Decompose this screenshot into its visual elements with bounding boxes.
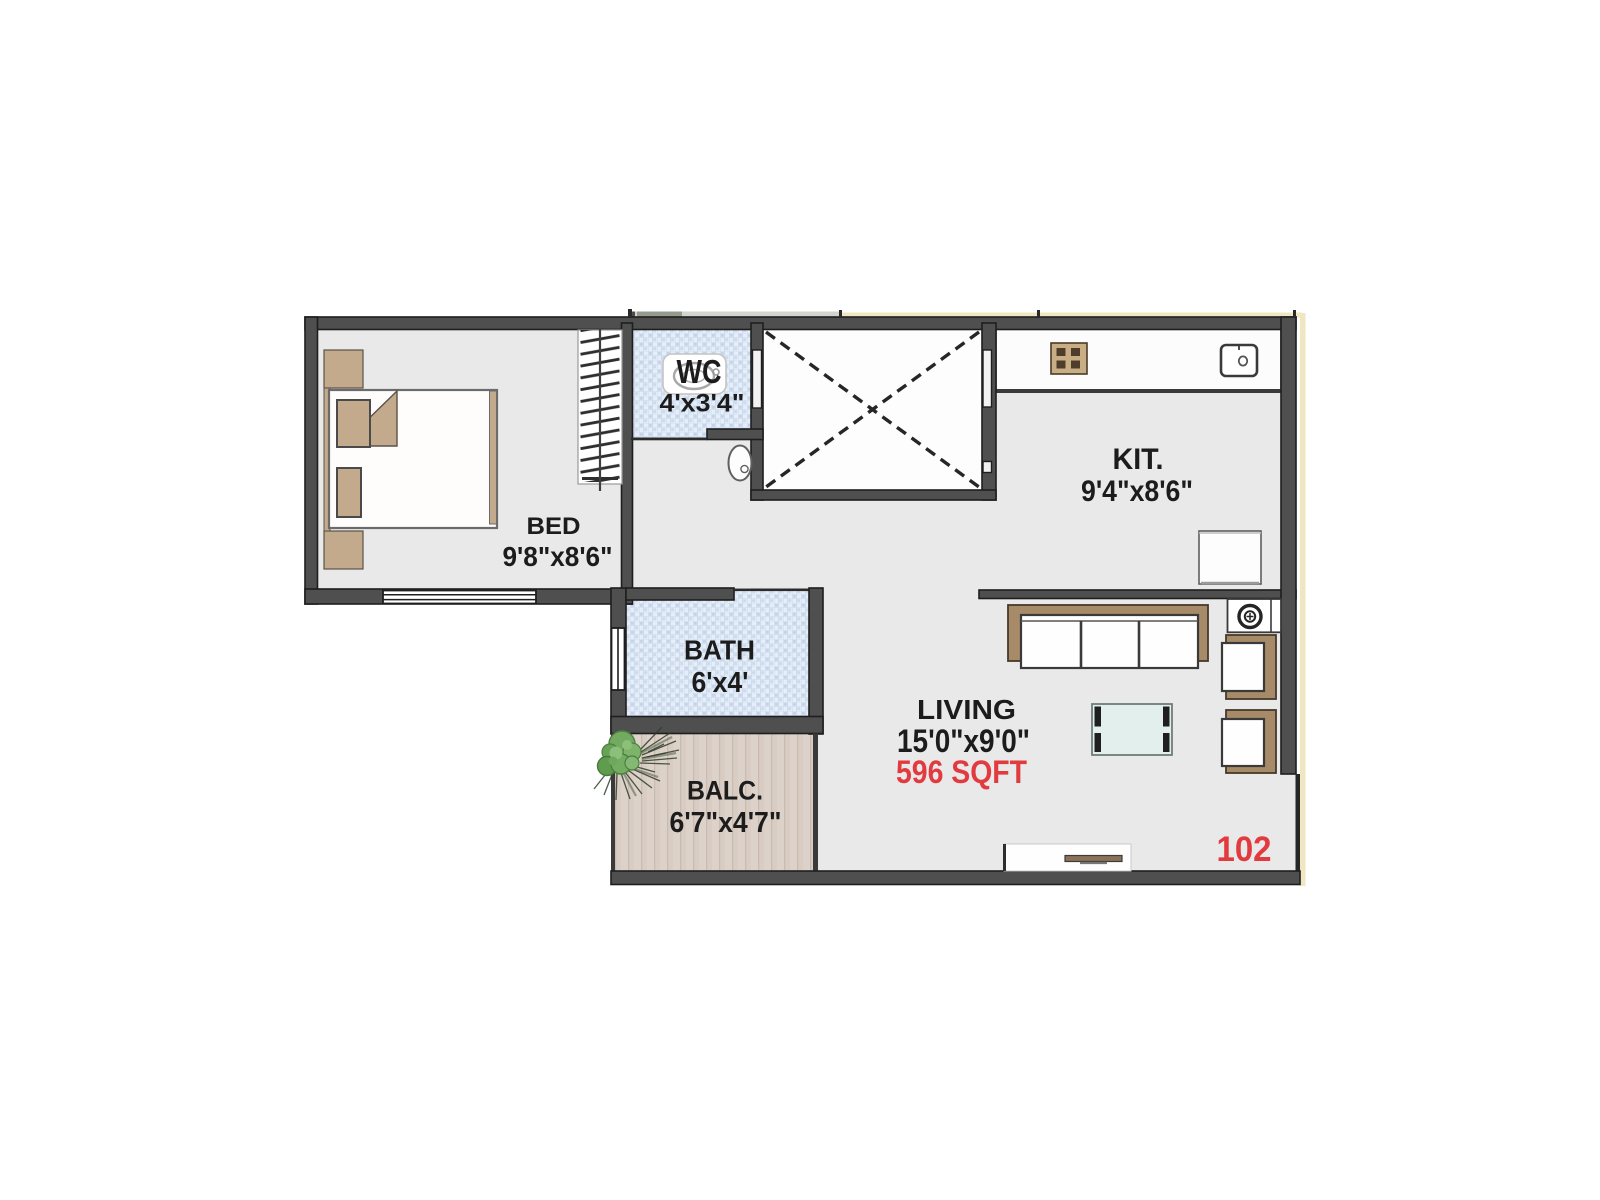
svg-text:4'x3'4": 4'x3'4" xyxy=(660,390,745,418)
svg-text:WC: WC xyxy=(677,353,722,390)
svg-text:LIVING: LIVING xyxy=(917,694,1016,725)
svg-text:BALC.: BALC. xyxy=(687,776,763,806)
svg-text:BATH: BATH xyxy=(684,635,755,666)
svg-text:9'4"x8'6": 9'4"x8'6" xyxy=(1081,475,1193,508)
svg-text:6'7"x4'7": 6'7"x4'7" xyxy=(670,807,782,839)
svg-text:596 SQFT: 596 SQFT xyxy=(896,754,1027,790)
svg-text:BED: BED xyxy=(527,513,581,540)
svg-text:9'8"x8'6": 9'8"x8'6" xyxy=(503,541,613,572)
svg-text:KIT.: KIT. xyxy=(1113,443,1164,476)
svg-text:6'x4': 6'x4' xyxy=(692,667,749,699)
svg-text:102: 102 xyxy=(1217,830,1272,869)
